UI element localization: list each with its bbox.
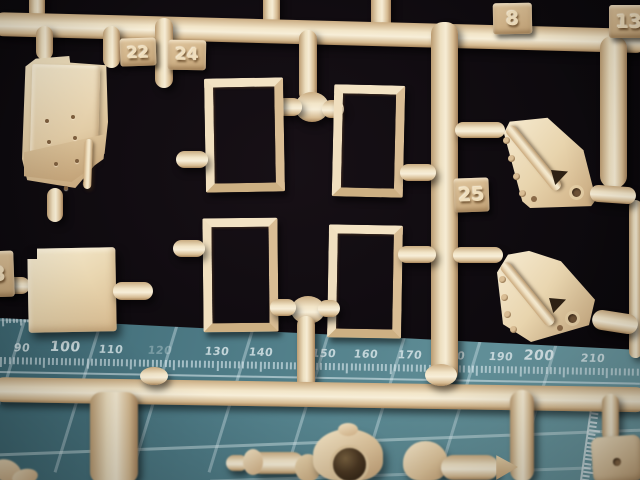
sprue-stub-bottom-right — [602, 394, 619, 442]
rivet — [45, 119, 49, 123]
part-number-tab-22: 22 — [120, 37, 157, 66]
hinge-hole-2 — [565, 311, 580, 326]
sprue-top-runner — [0, 12, 640, 53]
window-frame-part-3 — [202, 218, 278, 333]
mat-scale-label: 120 — [147, 344, 173, 357]
sprue-gate-frame3-left — [173, 240, 205, 257]
sprue-stub-x108 — [103, 26, 120, 68]
sprue-gate-square-right — [113, 282, 153, 300]
sprue-gate-frame1-left — [176, 151, 208, 168]
sprue-gate-bjunction-right — [318, 300, 340, 317]
sprue-runner-below-left — [90, 392, 138, 480]
hinge-dot — [557, 325, 563, 331]
rivet — [73, 136, 77, 140]
window-frame-part-2 — [332, 84, 406, 198]
round-part — [403, 441, 448, 480]
mat-scale-label: 110 — [98, 343, 124, 356]
hinge-knuckle — [504, 311, 511, 318]
window-frame-part-1 — [204, 77, 285, 192]
sprue-bottom-bulge-right — [425, 364, 457, 386]
window-frame-part-4 — [327, 224, 403, 338]
cylinder-knob — [243, 449, 263, 475]
sprue-gate-frame4-right — [398, 246, 436, 263]
hinge-knuckle — [513, 173, 520, 180]
hinge-knuckle — [503, 137, 510, 144]
mat-scale-label: 200 — [523, 348, 556, 365]
rivet — [75, 159, 79, 163]
sprue-runner-right-edge — [600, 36, 627, 188]
square-plate-corner-notch — [27, 247, 37, 259]
sprue-gate-frame2-right — [400, 164, 436, 181]
hinge-knuckle — [519, 190, 526, 197]
sprue-gate-hatch-bottom — [47, 188, 63, 222]
mat-scale-label: 190 — [488, 350, 514, 363]
hatch-plate-rod — [83, 139, 93, 189]
sprue-runner-right-edge-lower — [629, 200, 640, 358]
cup-part-tab — [338, 423, 358, 436]
bullet-part — [441, 455, 499, 480]
sprue-bottom-bulge-left — [140, 367, 168, 385]
rivet — [47, 140, 51, 144]
hinge-dot — [531, 196, 537, 202]
hinge-hole-1 — [569, 185, 584, 200]
mat-scale-label: 210 — [580, 352, 606, 365]
hinge-knuckle — [510, 326, 517, 333]
mat-scale-label: 130 — [204, 345, 230, 358]
part-number-tab-13: 13 — [609, 5, 640, 38]
sprue-gate-hinge1-left — [455, 122, 505, 138]
sprue-gate-hinge2-left — [453, 247, 503, 263]
rivet — [64, 186, 68, 190]
sprue-gate-hatch-top — [36, 26, 53, 60]
mat-scale-label: 100 — [49, 339, 82, 356]
hinge-knuckle — [501, 294, 508, 301]
cup-hole — [330, 445, 369, 480]
part-number-tab-24: 24 — [168, 40, 207, 71]
part-number-tab-partial: 3 — [0, 250, 15, 297]
mat-scale-label: 90 — [13, 341, 31, 354]
mat-scale-label: 140 — [248, 346, 274, 359]
photo-stage: 90 100 110 120 130 140 150 160 170 180 1… — [0, 0, 640, 480]
sprue-gate-hinge1-right — [589, 184, 636, 204]
part-number-tab-25: 25 — [453, 177, 489, 212]
rivet — [54, 162, 58, 166]
hinge-knuckle — [499, 276, 506, 283]
dimple — [613, 458, 621, 466]
sprue-gate-bjunction-left — [270, 299, 296, 316]
rivet — [71, 115, 75, 119]
mat-scale-label: 170 — [397, 348, 423, 361]
mat-scale-label: 160 — [353, 348, 379, 361]
hinge-knuckle — [508, 155, 515, 162]
square-plate-part — [27, 247, 116, 333]
part-number-tab-8: 8 — [493, 3, 533, 35]
